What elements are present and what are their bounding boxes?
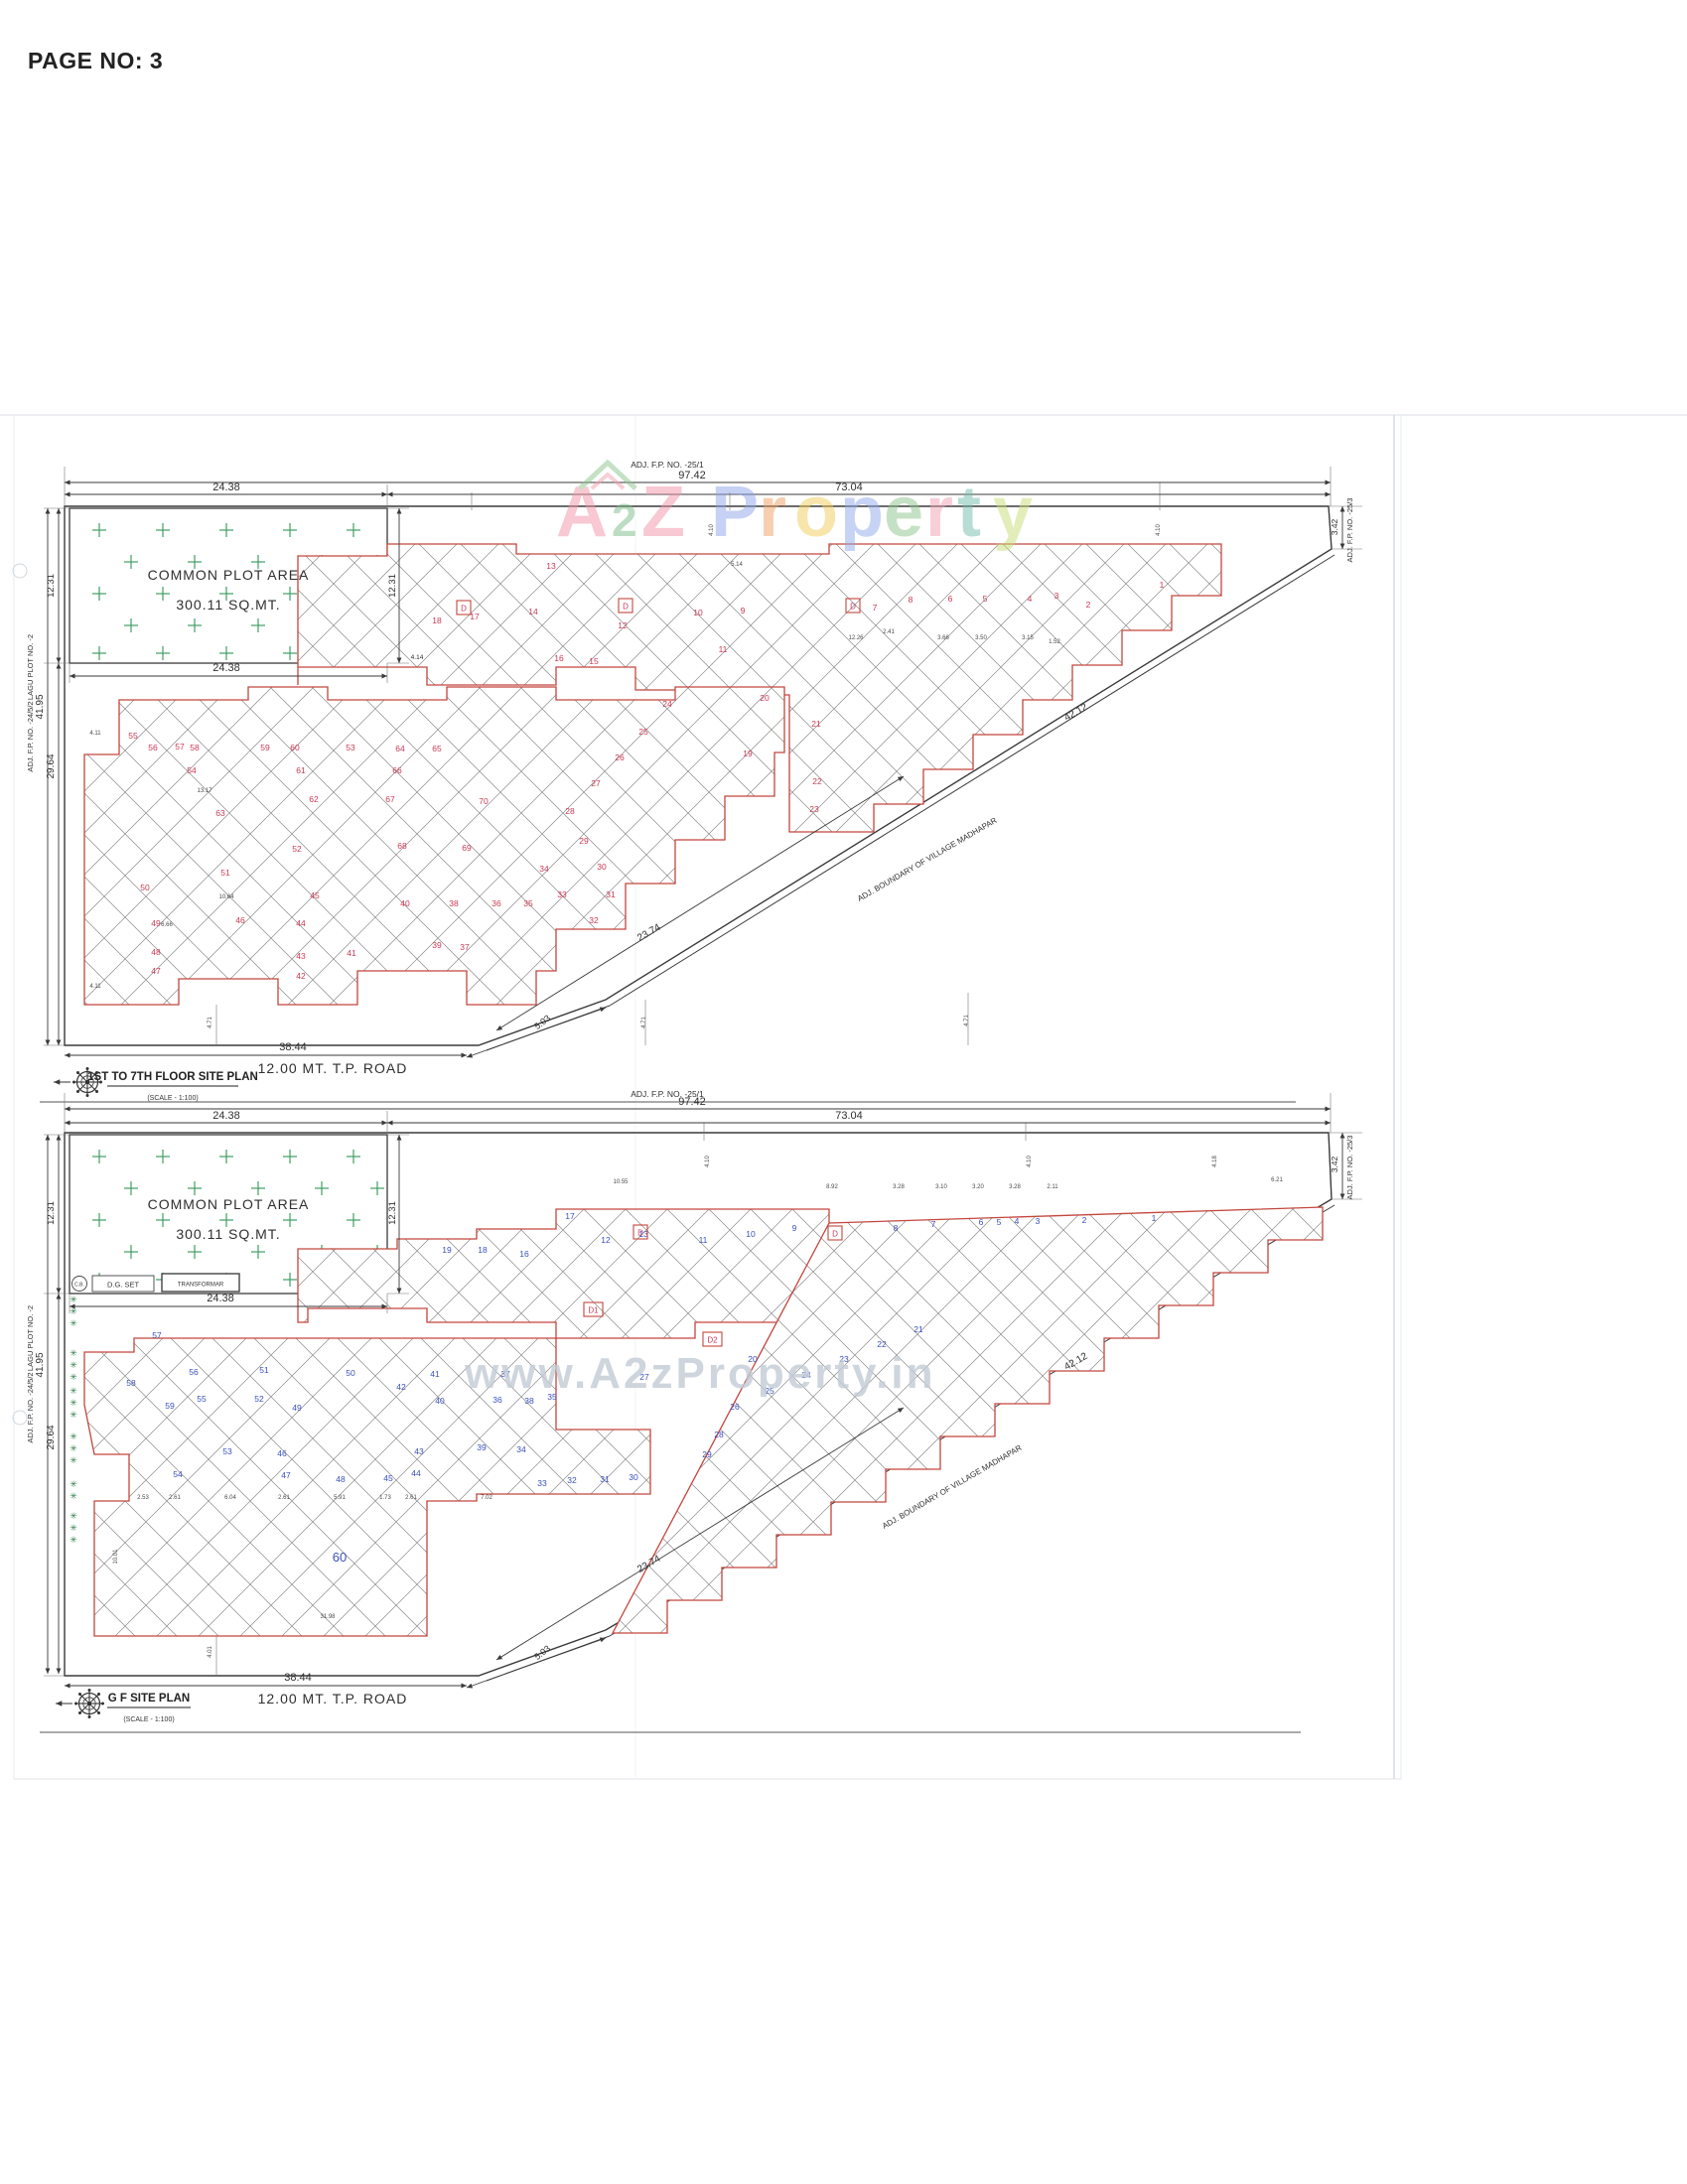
- minor-dim-label: 1.52: [1049, 639, 1060, 645]
- minor-dim-label: 12.26: [848, 635, 864, 641]
- site-plan-upper: ADJ. F.P. NO. -25/197.4224.3873.0424.381…: [26, 460, 1362, 1102]
- dim-label: 12.31: [46, 574, 57, 598]
- minor-dim-label: 3.50: [975, 635, 987, 641]
- unit-number: 10: [746, 1229, 756, 1239]
- minor-dim-label: 4.71: [641, 1017, 647, 1028]
- dim-label: 24.38: [212, 1110, 240, 1122]
- unit-number: 52: [292, 844, 302, 854]
- unit-number: 29: [702, 1449, 712, 1459]
- unit-number: 57: [152, 1330, 162, 1340]
- dim-label: 3.42: [1330, 518, 1339, 535]
- watermark-letter: t: [957, 473, 981, 552]
- dim-label: 29.64: [46, 753, 57, 778]
- unit-number: 30: [629, 1472, 638, 1482]
- minor-dim-label: 1.73: [379, 1495, 391, 1501]
- unit-number: 59: [260, 743, 270, 752]
- unit-number: 60: [290, 743, 300, 752]
- unit-number: 5: [983, 594, 988, 604]
- minor-dim-label: 10.55: [613, 1179, 629, 1185]
- unit-number: 21: [811, 719, 821, 729]
- unit-number: 41: [430, 1369, 440, 1379]
- adj-plot-label-left: ADJ. F.P. NO. -24/5/2: [26, 1372, 35, 1442]
- unit-number: 43: [414, 1446, 424, 1456]
- watermark-letter: 2: [612, 494, 637, 546]
- common-plot-area-value: 300.11 SQ.MT.: [176, 1226, 280, 1242]
- unit-number: 51: [220, 868, 230, 878]
- unit-number: 13: [546, 561, 556, 571]
- unit-number: 19: [442, 1245, 452, 1255]
- dim-label: 38.44: [279, 1041, 307, 1053]
- minor-dim-label: 31.98: [320, 1614, 336, 1620]
- tree-marker: ✳: [70, 1360, 77, 1370]
- d-unit-label: D1: [588, 1306, 599, 1315]
- unit-number: 46: [277, 1448, 287, 1458]
- dim-label: 12.31: [46, 1201, 57, 1225]
- unit-number: 46: [235, 915, 245, 925]
- unit-number: 29: [579, 836, 589, 846]
- tree-marker: ✳: [70, 1523, 77, 1533]
- tree-marker: ✳: [70, 1479, 77, 1489]
- d-unit-label: D2: [707, 1336, 718, 1345]
- unit-number: 55: [197, 1394, 207, 1404]
- unit-number: 52: [254, 1394, 264, 1404]
- minor-dim-label: 4.11: [89, 984, 101, 990]
- scanned-site-plan-sheet: ADJ. F.P. NO. -25/197.4224.3873.0424.381…: [0, 0, 1687, 2184]
- tree-marker: ✳: [70, 1410, 77, 1420]
- unit-number: 5: [997, 1217, 1002, 1227]
- tree-marker: ✳: [70, 1511, 77, 1521]
- unit-number: 14: [528, 607, 538, 616]
- dim-label: 97.42: [678, 1096, 706, 1108]
- unit-number: 50: [346, 1368, 355, 1378]
- unit-number: 9: [792, 1223, 797, 1233]
- minor-dim-label: 7.02: [481, 1495, 492, 1501]
- unit-number: 57: [175, 742, 185, 751]
- legend-dg-set-label: D.G. SET: [107, 1281, 140, 1290]
- adj-plot-label-right: ADJ. F.P. NO. -25/3: [1345, 1136, 1354, 1200]
- watermark-brand: A2ZProperty: [556, 463, 1033, 552]
- minor-dim-label: 2.11: [1047, 1184, 1058, 1190]
- unit-number: 58: [126, 1378, 136, 1388]
- unit-number: 33: [537, 1478, 547, 1488]
- unit-number: 8: [909, 595, 914, 605]
- unit-number: 54: [173, 1469, 183, 1479]
- unit-number: 26: [730, 1402, 740, 1412]
- common-plot-label: COMMON PLOT AREA: [148, 567, 310, 583]
- tree-marker: ✳: [70, 1386, 77, 1396]
- unit-number: 28: [714, 1430, 724, 1439]
- unit-number: 30: [597, 862, 607, 872]
- unit-number: 6: [948, 594, 953, 604]
- unit-number: 18: [432, 615, 442, 625]
- punch-hole: [13, 564, 27, 578]
- dim-label: 41.95: [35, 694, 46, 719]
- minor-dim-label: 2.61: [169, 1495, 181, 1501]
- road-label: 12.00 MT. T.P. ROAD: [258, 1691, 408, 1706]
- hatched-building: [84, 687, 784, 1005]
- unit-number: 22: [877, 1339, 887, 1349]
- minor-dim-label: 4.71: [208, 1017, 213, 1028]
- d-unit-label: D: [832, 1230, 838, 1239]
- unit-number: 40: [435, 1396, 445, 1406]
- unit-number: 47: [151, 966, 161, 976]
- minor-dim-label: 10.01: [113, 1549, 119, 1565]
- unit-number: 12: [601, 1235, 611, 1245]
- unit-number: 11: [719, 644, 728, 654]
- unit-number: 50: [140, 883, 150, 892]
- watermark-letter: e: [884, 473, 923, 552]
- unit-number: 65: [432, 744, 442, 753]
- minor-dim-label: 3.28: [1009, 1184, 1021, 1190]
- tree-marker: ✳: [70, 1432, 77, 1441]
- minor-dim-label: 3.66: [937, 635, 949, 641]
- unit-number: 69: [462, 843, 472, 853]
- unit-number: 49: [292, 1403, 302, 1413]
- unit-number: 54: [187, 765, 197, 775]
- unit-number: 21: [914, 1324, 923, 1334]
- unit-number: 31: [606, 889, 616, 899]
- unit-number: 45: [383, 1473, 393, 1483]
- unit-number: 18: [478, 1245, 488, 1255]
- unit-number: 11: [699, 1235, 708, 1245]
- tree-markers: ✳✳✳✳✳✳✳✳✳✳✳✳✳✳✳✳✳: [70, 1295, 77, 1545]
- drawing-line: [467, 1638, 606, 1688]
- minor-dim-label: 4.10: [1156, 524, 1162, 536]
- unit-number: 19: [743, 749, 753, 758]
- unit-number: 42: [396, 1382, 406, 1392]
- minor-dim-label: 3.28: [893, 1184, 905, 1190]
- unit-number: 32: [567, 1475, 577, 1485]
- dim-label: 42.12: [1062, 702, 1090, 724]
- unit-number: 59: [165, 1401, 175, 1411]
- d-unit-label: D: [637, 1229, 643, 1238]
- unit-number: 66: [392, 765, 402, 775]
- dim-label: 41.95: [35, 1352, 46, 1377]
- adj-plot-label-right: ADJ. F.P. NO. -25/3: [1345, 498, 1354, 563]
- dim-label: 73.04: [835, 1110, 863, 1122]
- minor-dim-label: 6.66: [161, 922, 173, 928]
- unit-number: 48: [151, 947, 161, 957]
- unit-number: 41: [347, 948, 356, 958]
- minor-dim-label: 4.10: [1027, 1156, 1033, 1167]
- unit-number: 64: [395, 744, 405, 753]
- dim-label: 38.44: [284, 1672, 312, 1684]
- punch-hole: [13, 1411, 27, 1425]
- unit-number: 6: [979, 1217, 984, 1227]
- common-plot-label: COMMON PLOT AREA: [148, 1196, 310, 1212]
- tree-marker: ✳: [70, 1455, 77, 1465]
- unit-number: 4: [1015, 1216, 1020, 1226]
- unit-number: 20: [760, 693, 770, 703]
- road-label: 12.00 MT. T.P. ROAD: [258, 1060, 408, 1076]
- dim-label: 5.03: [532, 1013, 552, 1031]
- unit-number: 45: [310, 890, 320, 900]
- unit-number: 25: [638, 727, 648, 737]
- unit-number: 15: [589, 656, 599, 666]
- unit-number: 58: [190, 743, 200, 752]
- watermark-letter: r: [925, 473, 953, 552]
- unit-number: 17: [565, 1211, 575, 1221]
- dim-label: 23.74: [635, 922, 663, 944]
- dim-label: 24.38: [212, 662, 240, 674]
- d-unit-label: D: [850, 603, 856, 612]
- plan-title: G F SITE PLAN: [108, 1693, 190, 1705]
- watermark-letter: y: [993, 473, 1033, 552]
- unit-number: 67: [385, 794, 395, 804]
- unit-number: 7: [931, 1219, 936, 1229]
- tree-marker: ✳: [70, 1535, 77, 1545]
- unit-number: 33: [557, 889, 567, 899]
- drawing-line: [467, 1008, 606, 1057]
- legend-cb-label: C.B.: [74, 1283, 84, 1289]
- tree-marker: ✳: [70, 1306, 77, 1316]
- minor-dim-label: 5.91: [334, 1495, 346, 1501]
- minor-dim-label: 4.11: [89, 731, 101, 737]
- unit-number: 53: [346, 743, 355, 752]
- unit-number: 44: [411, 1468, 421, 1478]
- minor-dim-label: 6.04: [224, 1495, 236, 1501]
- minor-dim-label: 2.61: [405, 1495, 417, 1501]
- boundary-label: ADJ. BOUNDARY OF VILLAGE MADHAPAR: [856, 816, 999, 903]
- unit-number: 40: [400, 898, 410, 908]
- unit-number: 35: [523, 898, 533, 908]
- unit-number: 47: [281, 1470, 291, 1480]
- minor-dim-label: 13.17: [197, 788, 212, 794]
- unit-number: 56: [148, 743, 158, 752]
- tree-marker: ✳: [70, 1443, 77, 1453]
- unit-number: 49: [151, 918, 161, 928]
- minor-dim-label: 3.15: [1022, 635, 1034, 641]
- unit-number: 1: [1160, 580, 1165, 590]
- unit-number: 36: [492, 898, 501, 908]
- minor-dim-label: 2.41: [883, 629, 895, 635]
- d-unit-label: D: [461, 605, 467, 614]
- minor-dim-label: 4.71: [964, 1015, 970, 1026]
- unit-number: 42: [296, 971, 306, 981]
- unit-number: 3: [1036, 1216, 1041, 1226]
- unit-number: 53: [222, 1446, 232, 1456]
- adj-plot-label-top: ADJ. F.P. NO. -25/1: [631, 460, 704, 470]
- minor-dim-label: 8.92: [826, 1184, 838, 1190]
- watermark-letter: o: [794, 473, 838, 552]
- unit-number: 16: [554, 653, 564, 663]
- unit-number: 32: [589, 915, 599, 925]
- unit-number: 61: [296, 765, 306, 775]
- dim-label: 12.31: [387, 1201, 398, 1225]
- unit-number: 26: [615, 752, 625, 762]
- unit-number: 1: [1152, 1213, 1157, 1223]
- unit-number: 3: [1054, 591, 1059, 601]
- minor-dim-label: 5.14: [731, 562, 743, 568]
- unit-number: 55: [128, 731, 138, 741]
- minor-dim-label: 4.10: [705, 1156, 711, 1167]
- watermark-url-text: www.A2zProperty.in: [464, 1349, 936, 1398]
- d-unit-label: D: [623, 603, 629, 612]
- minor-dim-label: 3.20: [972, 1184, 984, 1190]
- tree-marker: ✳: [70, 1398, 77, 1408]
- minor-dim-label: 10.64: [218, 894, 234, 900]
- plan-scale-note: (SCALE - 1:100): [147, 1095, 198, 1102]
- unit-number: 34: [516, 1444, 526, 1454]
- watermark-letter: P: [711, 473, 759, 552]
- dim-label: 5.03: [532, 1643, 552, 1662]
- unit-number: 39: [477, 1442, 487, 1452]
- tree-marker: ✳: [70, 1295, 77, 1304]
- plan-title: 1ST TO 7TH FLOOR SITE PLAN: [87, 1071, 258, 1083]
- unit-number: 28: [565, 806, 575, 816]
- dim-label: 3.42: [1330, 1156, 1339, 1172]
- dim-label: 4.14: [411, 654, 424, 661]
- tree-marker: ✳: [70, 1372, 77, 1382]
- unit-number: 44: [296, 918, 306, 928]
- unit-number: 12: [618, 620, 628, 630]
- minor-dim-label: 2.61: [278, 1495, 290, 1501]
- tree-marker: ✳: [70, 1318, 77, 1328]
- compass-icon: [56, 1689, 104, 1718]
- unit-number: 68: [397, 841, 407, 851]
- plan-scale-note: (SCALE - 1:100): [123, 1716, 174, 1723]
- unit-number: 17: [470, 612, 480, 621]
- adj-plot-label-left: ADJ. F.P. NO. -24/5/2: [26, 701, 35, 771]
- unit-number: 8: [894, 1223, 899, 1233]
- unit-number: 51: [259, 1365, 269, 1375]
- unit-number: 63: [215, 808, 225, 818]
- minor-dim-label: 3.10: [935, 1184, 947, 1190]
- unit-number: 9: [741, 606, 746, 615]
- unit-number: 27: [591, 778, 601, 788]
- unit-number: 16: [519, 1249, 529, 1259]
- minor-dim-label: 4.18: [1212, 1156, 1218, 1167]
- unit-number: 56: [189, 1367, 199, 1377]
- watermark-url: www.A2zProperty.in: [464, 1349, 936, 1398]
- unit-number: 60: [333, 1550, 347, 1565]
- unit-number: 23: [809, 804, 819, 814]
- watermark-letter: p: [840, 473, 884, 552]
- unit-number: 39: [432, 940, 442, 950]
- minor-dim-label: 4.01: [208, 1646, 213, 1658]
- minor-dim-label: 2.53: [137, 1495, 149, 1501]
- watermark-letter: Z: [641, 473, 685, 552]
- legend-transformer-label: TRANSFORMAR: [178, 1283, 224, 1289]
- unit-number: 38: [449, 898, 459, 908]
- tree-marker: ✳: [70, 1348, 77, 1358]
- watermark-letter: r: [759, 473, 786, 552]
- site-plan-lower: ADJ. F.P. NO. -25/197.4224.3873.0424.381…: [26, 1089, 1362, 1732]
- unit-number: 48: [336, 1474, 346, 1484]
- unit-number: 43: [296, 951, 306, 961]
- dim-label: 24.38: [212, 481, 240, 493]
- unit-number: 70: [479, 796, 489, 806]
- dim-label: 24.38: [207, 1293, 234, 1304]
- adj-plot-label-left: LAGU PLOT NO. -2: [26, 1305, 35, 1371]
- unit-number: 7: [873, 603, 878, 613]
- dim-label: 12.31: [387, 574, 398, 598]
- unit-number: 37: [460, 942, 470, 952]
- unit-number: 4: [1028, 594, 1033, 604]
- unit-number: 31: [600, 1474, 610, 1484]
- unit-number: 22: [812, 776, 822, 786]
- tree-marker: ✳: [70, 1491, 77, 1501]
- adj-plot-label-left: LAGU PLOT NO. -2: [26, 634, 35, 700]
- unit-number: 2: [1082, 1215, 1087, 1225]
- minor-dim-label: 6.21: [1271, 1177, 1283, 1183]
- unit-number: 10: [693, 608, 703, 617]
- dim-label: 29.64: [46, 1425, 57, 1449]
- unit-number: 62: [309, 794, 319, 804]
- unit-number: 2: [1086, 600, 1091, 610]
- unit-number: 34: [539, 864, 549, 874]
- unit-number: 24: [662, 699, 672, 709]
- common-plot-area-value: 300.11 SQ.MT.: [176, 597, 280, 613]
